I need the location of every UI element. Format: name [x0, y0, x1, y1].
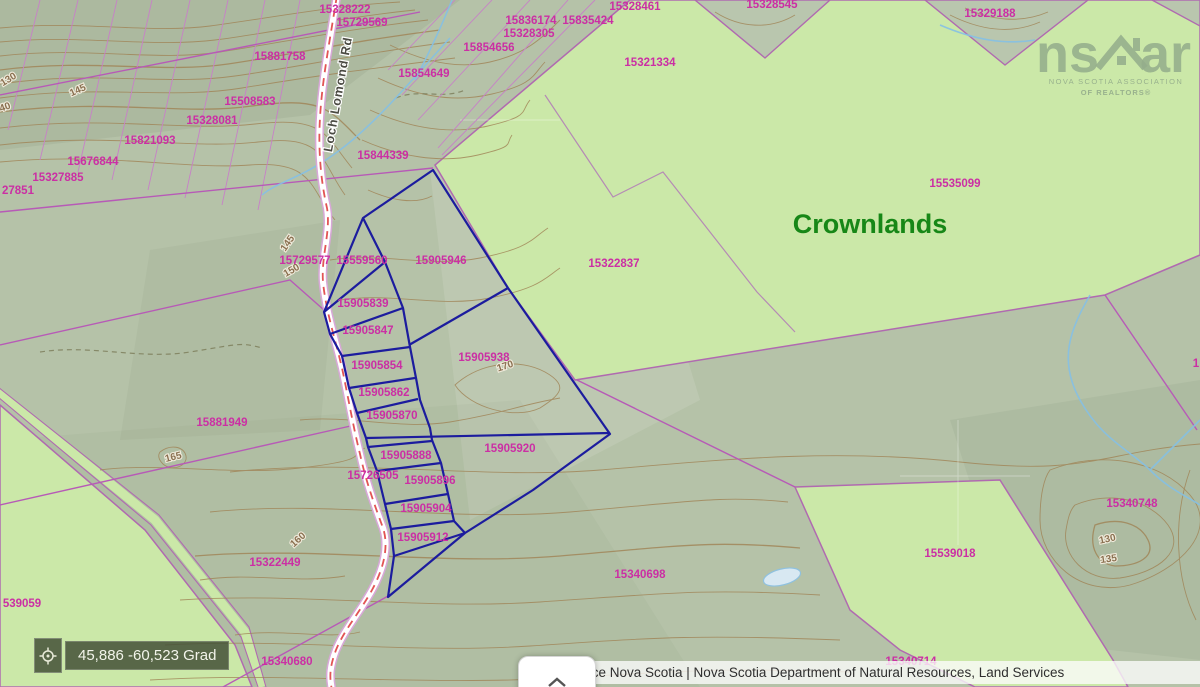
locate-button[interactable] — [34, 638, 62, 673]
parcel-label: 15905870 — [366, 410, 417, 422]
parcel-label: 15327885 — [32, 172, 84, 184]
parcel-label: 15905904 — [400, 503, 452, 515]
nsar-logo-caption1: NOVA SCOTIA ASSOCIATION — [1049, 77, 1183, 86]
map-canvas[interactable]: 130 145 40 145 150 165 160 170 130 135 1… — [0, 0, 1200, 687]
parcel-label: 15321334 — [624, 57, 676, 69]
parcel-label: 15322449 — [249, 557, 300, 569]
nsar-logo-ar: ar — [1140, 24, 1191, 84]
coordinate-value: 45,886 -60,523 Grad — [65, 641, 229, 670]
parcel-label: 27851 — [2, 185, 35, 197]
attribution-bar: Service Nova Scotia | Nova Scotia Depart… — [545, 661, 1200, 684]
parcel-label: 1 — [1193, 358, 1200, 370]
parcel-label: 15329188 — [964, 8, 1016, 20]
parcel-label: 15328222 — [319, 4, 370, 16]
parcel-label: 15905912 — [397, 532, 448, 544]
parcel-label: 15559560 — [336, 255, 387, 267]
parcel-label: 15729577 — [279, 255, 330, 267]
parcel-label: 539059 — [3, 598, 41, 610]
parcel-label: 15508583 — [224, 96, 275, 108]
parcel-label: 15905888 — [380, 450, 432, 462]
parcel-label: 15328305 — [503, 28, 555, 40]
nsar-logo-caption2: OF REALTORS® — [1081, 88, 1152, 97]
parcel-label: 15729569 — [336, 17, 387, 29]
coordinate-readout: 45,886 -60,523 Grad — [34, 638, 229, 673]
parcel-label: 15328545 — [746, 0, 798, 11]
parcel-label: 15905946 — [415, 255, 466, 267]
parcel-label: 15905854 — [351, 360, 403, 372]
parcel-label: 15854656 — [463, 42, 514, 54]
parcel-label: 15340748 — [1106, 498, 1158, 510]
attribution-text: Service Nova Scotia | Nova Scotia Depart… — [561, 665, 1064, 680]
parcel-label: 15905920 — [484, 443, 535, 455]
panel-collapse-button[interactable] — [518, 656, 596, 687]
parcel-label: 15340680 — [261, 656, 312, 668]
parcel-label: 15676844 — [67, 156, 119, 168]
crosshair-icon — [39, 647, 57, 665]
chevron-up-icon — [545, 676, 569, 687]
nsar-logo-ns: ns — [1036, 24, 1099, 84]
parcel-label: 15340698 — [614, 569, 666, 581]
parcel-label: 15881949 — [196, 417, 247, 429]
parcel-label: 15844339 — [357, 150, 408, 162]
parcel-label: 15905847 — [342, 325, 393, 337]
parcel-label: 15836174 — [505, 15, 557, 27]
parcel-label: 15881758 — [254, 51, 306, 63]
parcel-label: 15726505 — [347, 470, 399, 482]
parcel-label: 15821093 — [124, 135, 175, 147]
parcel-label: 15854649 — [398, 68, 449, 80]
parcel-label: 15905938 — [458, 352, 510, 364]
parcel-label: 15328461 — [609, 1, 661, 13]
parcel-label: 15905862 — [358, 387, 409, 399]
map-viewport[interactable]: 130 145 40 145 150 165 160 170 130 135 1… — [0, 0, 1200, 687]
crownlands-label: Crownlands — [793, 209, 948, 239]
parcel-label: 15905839 — [337, 298, 388, 310]
parcel-label: 15905896 — [404, 475, 455, 487]
parcel-label: 15328081 — [186, 115, 238, 127]
parcel-label: 15835424 — [562, 15, 614, 27]
parcel-label: 15539018 — [924, 548, 976, 560]
parcel-label: 15322837 — [588, 258, 639, 270]
parcel-label: 15535099 — [929, 178, 980, 190]
